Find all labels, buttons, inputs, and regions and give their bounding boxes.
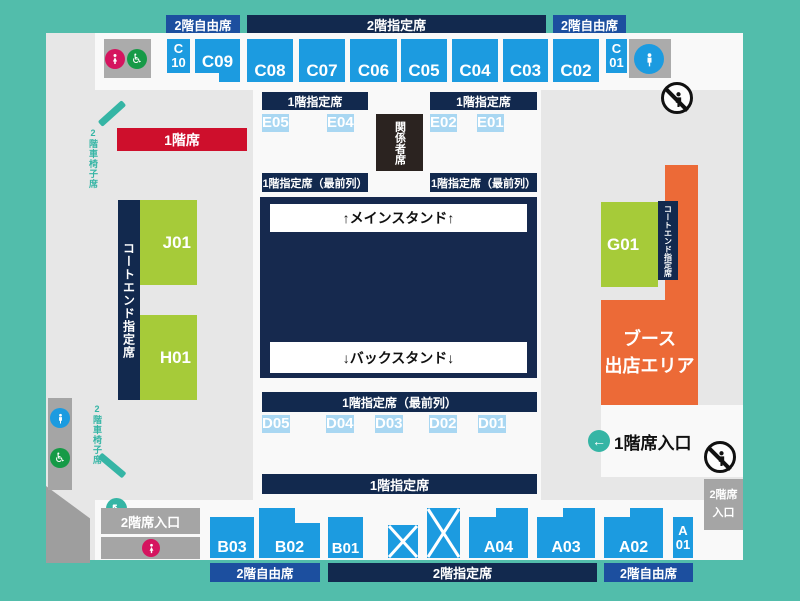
court-end-label-left: コートエンド指定席 <box>118 200 140 400</box>
no-entry-icon-top <box>661 82 693 114</box>
bar-2f-free-bottom-left: 2階自由席 <box>210 563 320 582</box>
floor1-seats-label: 1階席 <box>117 128 247 151</box>
seat-H01[interactable]: H01 <box>140 315 197 400</box>
seat-C03[interactable]: C03 <box>503 39 548 82</box>
seat-G01[interactable]: G01 <box>601 202 658 287</box>
seat-C09[interactable]: C09 <box>195 39 240 82</box>
bar-2f-free-top-right: 2階自由席 <box>553 15 626 33</box>
wheelchair-2f-label-top: 2階車椅子席 <box>87 128 100 190</box>
court-end-label-right: コートエンド指定席 <box>658 201 678 280</box>
seat-J01[interactable]: J01 <box>140 200 197 285</box>
closed-block-small <box>388 525 418 558</box>
seat-D02[interactable]: D02 <box>429 415 469 473</box>
seat-E02[interactable]: E02 <box>430 114 470 171</box>
seat-A01[interactable]: A 01 <box>673 517 693 558</box>
seat-C05[interactable]: C05 <box>401 39 447 82</box>
seat-A03[interactable]: A03 <box>537 508 595 558</box>
back-stand-label: ↓バックスタンド↓ <box>270 342 527 373</box>
seat-C08[interactable]: C08 <box>247 39 293 82</box>
seat-C04[interactable]: C04 <box>452 39 498 82</box>
seat-C02[interactable]: C02 <box>553 39 599 82</box>
booth-area-block: ブース 出店エリア <box>601 300 698 405</box>
seat-D05[interactable]: D05 <box>262 415 322 473</box>
wheelchair-icon-left: ♿ <box>50 448 70 468</box>
seat-C07[interactable]: C07 <box>299 39 345 82</box>
entrance-2f-right-box: 2階席 入口 <box>704 479 743 530</box>
seat-C01[interactable]: C 01 <box>606 39 627 73</box>
men-toilet-icon-left <box>50 408 70 428</box>
f1-reserved-label-bottom: 1階指定席 <box>262 474 537 494</box>
seat-A04[interactable]: A04 <box>469 508 528 558</box>
women-toilet-icon-bottom <box>142 539 160 557</box>
seat-B03[interactable]: B03 <box>210 517 254 558</box>
seat-D01[interactable]: D01 <box>478 415 537 473</box>
seat-E05[interactable]: E05 <box>262 114 322 171</box>
f1-reserved-label-left: 1階指定席 <box>262 92 368 110</box>
f1-reserved-label-right: 1階指定席 <box>430 92 537 110</box>
bar-2f-free-bottom-right: 2階自由席 <box>604 563 693 582</box>
venue-seating-map: 2階自由席 2階指定席 2階自由席 ♿ C 10 C09 C08 C07 C06… <box>0 0 800 601</box>
booth-area-label: ブース 出店エリア <box>605 326 695 380</box>
entrance-1f-arrow-icon: ← <box>588 430 610 452</box>
seat-D03[interactable]: D03 <box>375 415 415 473</box>
seat-E01[interactable]: E01 <box>477 114 537 171</box>
wheelchair-icon-top: ♿ <box>127 49 147 69</box>
f1-front-label-back: 1階指定席（最前列） <box>262 392 537 412</box>
entrance-1f-label: 1階席入口 <box>614 429 714 453</box>
seat-C10[interactable]: C 10 <box>167 39 190 73</box>
women-toilet-icon <box>105 49 125 69</box>
men-toilet-icon-top <box>634 44 664 74</box>
f1-front-label-right: 1階指定席（最前列） <box>430 173 537 192</box>
bar-2f-reserved-top: 2階指定席 <box>247 15 546 33</box>
closed-block-large <box>427 508 460 558</box>
no-entry-icon-bottom <box>704 441 736 473</box>
seat-B01[interactable]: B01 <box>328 517 363 558</box>
seat-C06[interactable]: C06 <box>350 39 397 82</box>
officials-seat-label: 関係者席 <box>376 114 423 171</box>
main-stand-label: ↑メインスタンド↑ <box>270 204 527 232</box>
entrance-2f-left-box: 2階席入口 <box>101 508 200 534</box>
bar-2f-reserved-bottom: 2階指定席 <box>328 563 597 582</box>
seat-E04[interactable]: E04 <box>327 114 367 171</box>
seat-B02[interactable]: B02 <box>259 508 320 558</box>
seat-D04[interactable]: D04 <box>326 415 367 473</box>
f1-front-label-left: 1階指定席（最前列） <box>262 173 368 192</box>
seat-A02[interactable]: A02 <box>604 508 663 558</box>
bar-2f-free-top-left: 2階自由席 <box>166 15 240 33</box>
